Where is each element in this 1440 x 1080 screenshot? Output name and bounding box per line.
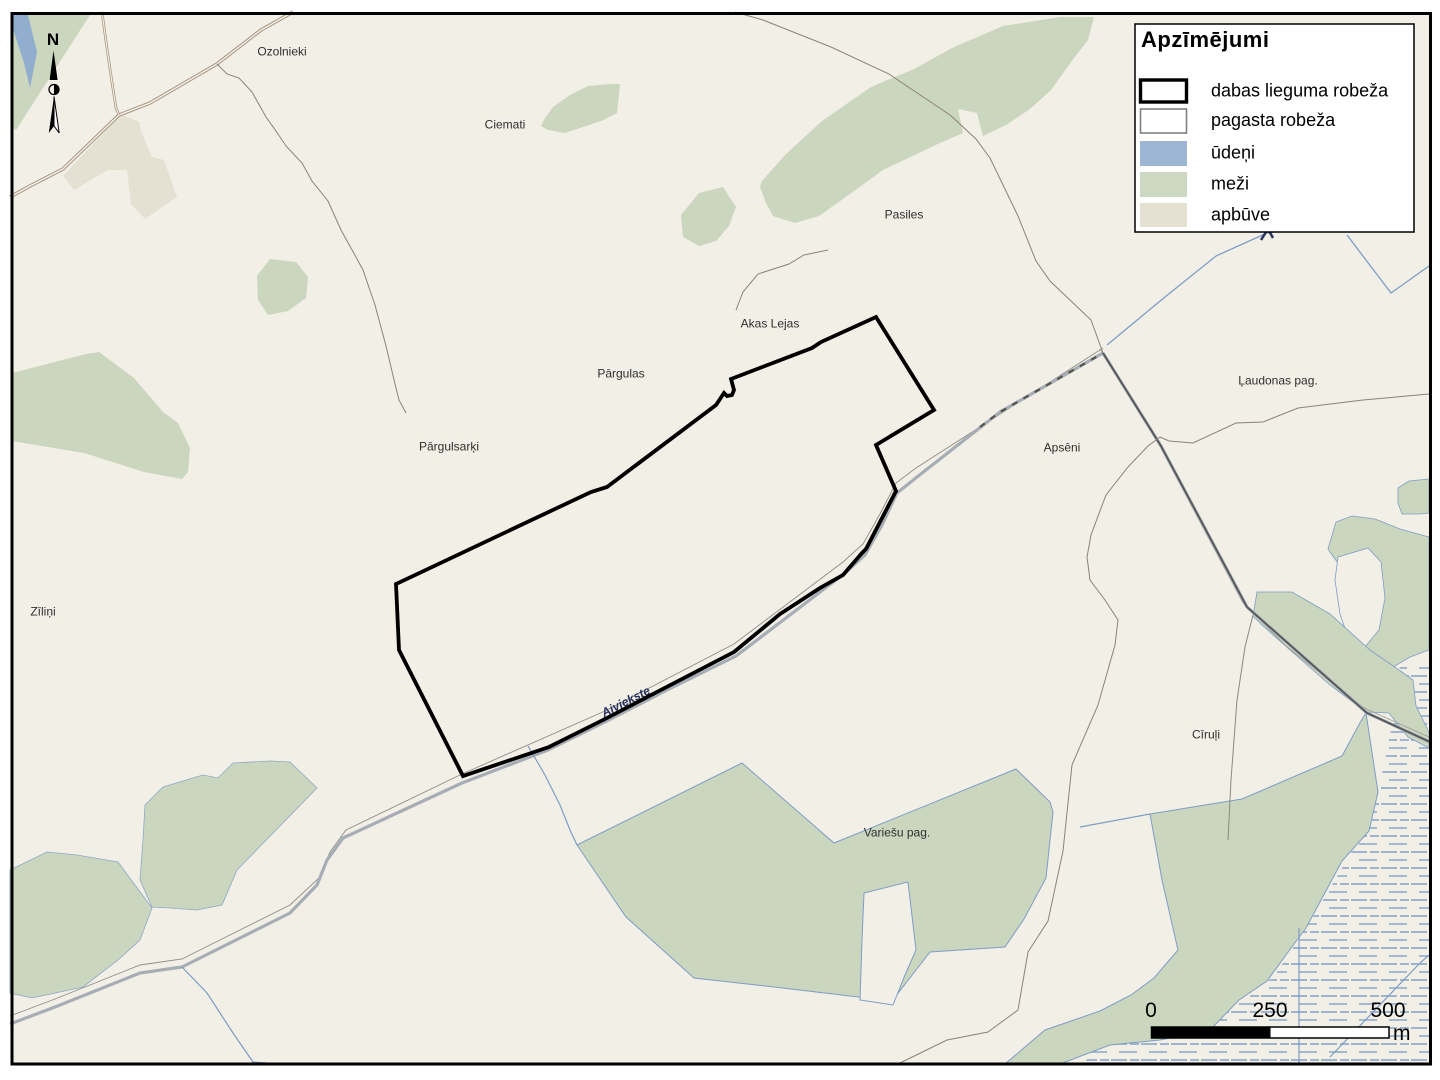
svg-text:Pārgulas: Pārgulas bbox=[597, 367, 644, 381]
svg-text:500: 500 bbox=[1370, 999, 1405, 1022]
svg-text:Ozolnieki: Ozolnieki bbox=[257, 45, 306, 59]
svg-text:pagasta robeža: pagasta robeža bbox=[1211, 110, 1336, 130]
svg-text:Akas Lejas: Akas Lejas bbox=[741, 317, 800, 331]
svg-text:Cīruļi: Cīruļi bbox=[1192, 728, 1220, 742]
svg-text:Variešu pag.: Variešu pag. bbox=[864, 826, 931, 840]
svg-text:Apzīmējumi: Apzīmējumi bbox=[1141, 27, 1269, 52]
svg-text:Ļaudonas pag.: Ļaudonas pag. bbox=[1238, 374, 1317, 388]
svg-text:Zīliņi: Zīliņi bbox=[30, 605, 55, 619]
svg-text:Ciemati: Ciemati bbox=[485, 118, 526, 132]
svg-text:dabas lieguma robeža: dabas lieguma robeža bbox=[1211, 81, 1389, 101]
svg-text:Pasiles: Pasiles bbox=[885, 208, 924, 222]
svg-text:Pārgulsarķi: Pārgulsarķi bbox=[419, 440, 479, 454]
svg-text:0: 0 bbox=[1145, 999, 1157, 1022]
svg-text:apbūve: apbūve bbox=[1211, 205, 1270, 225]
svg-text:meži: meži bbox=[1211, 174, 1249, 194]
svg-text:250: 250 bbox=[1252, 999, 1287, 1022]
svg-text:m: m bbox=[1393, 1022, 1411, 1045]
svg-text:Apsēni: Apsēni bbox=[1044, 441, 1081, 455]
svg-text:ūdeņi: ūdeņi bbox=[1211, 143, 1255, 163]
svg-text:N: N bbox=[47, 30, 59, 49]
